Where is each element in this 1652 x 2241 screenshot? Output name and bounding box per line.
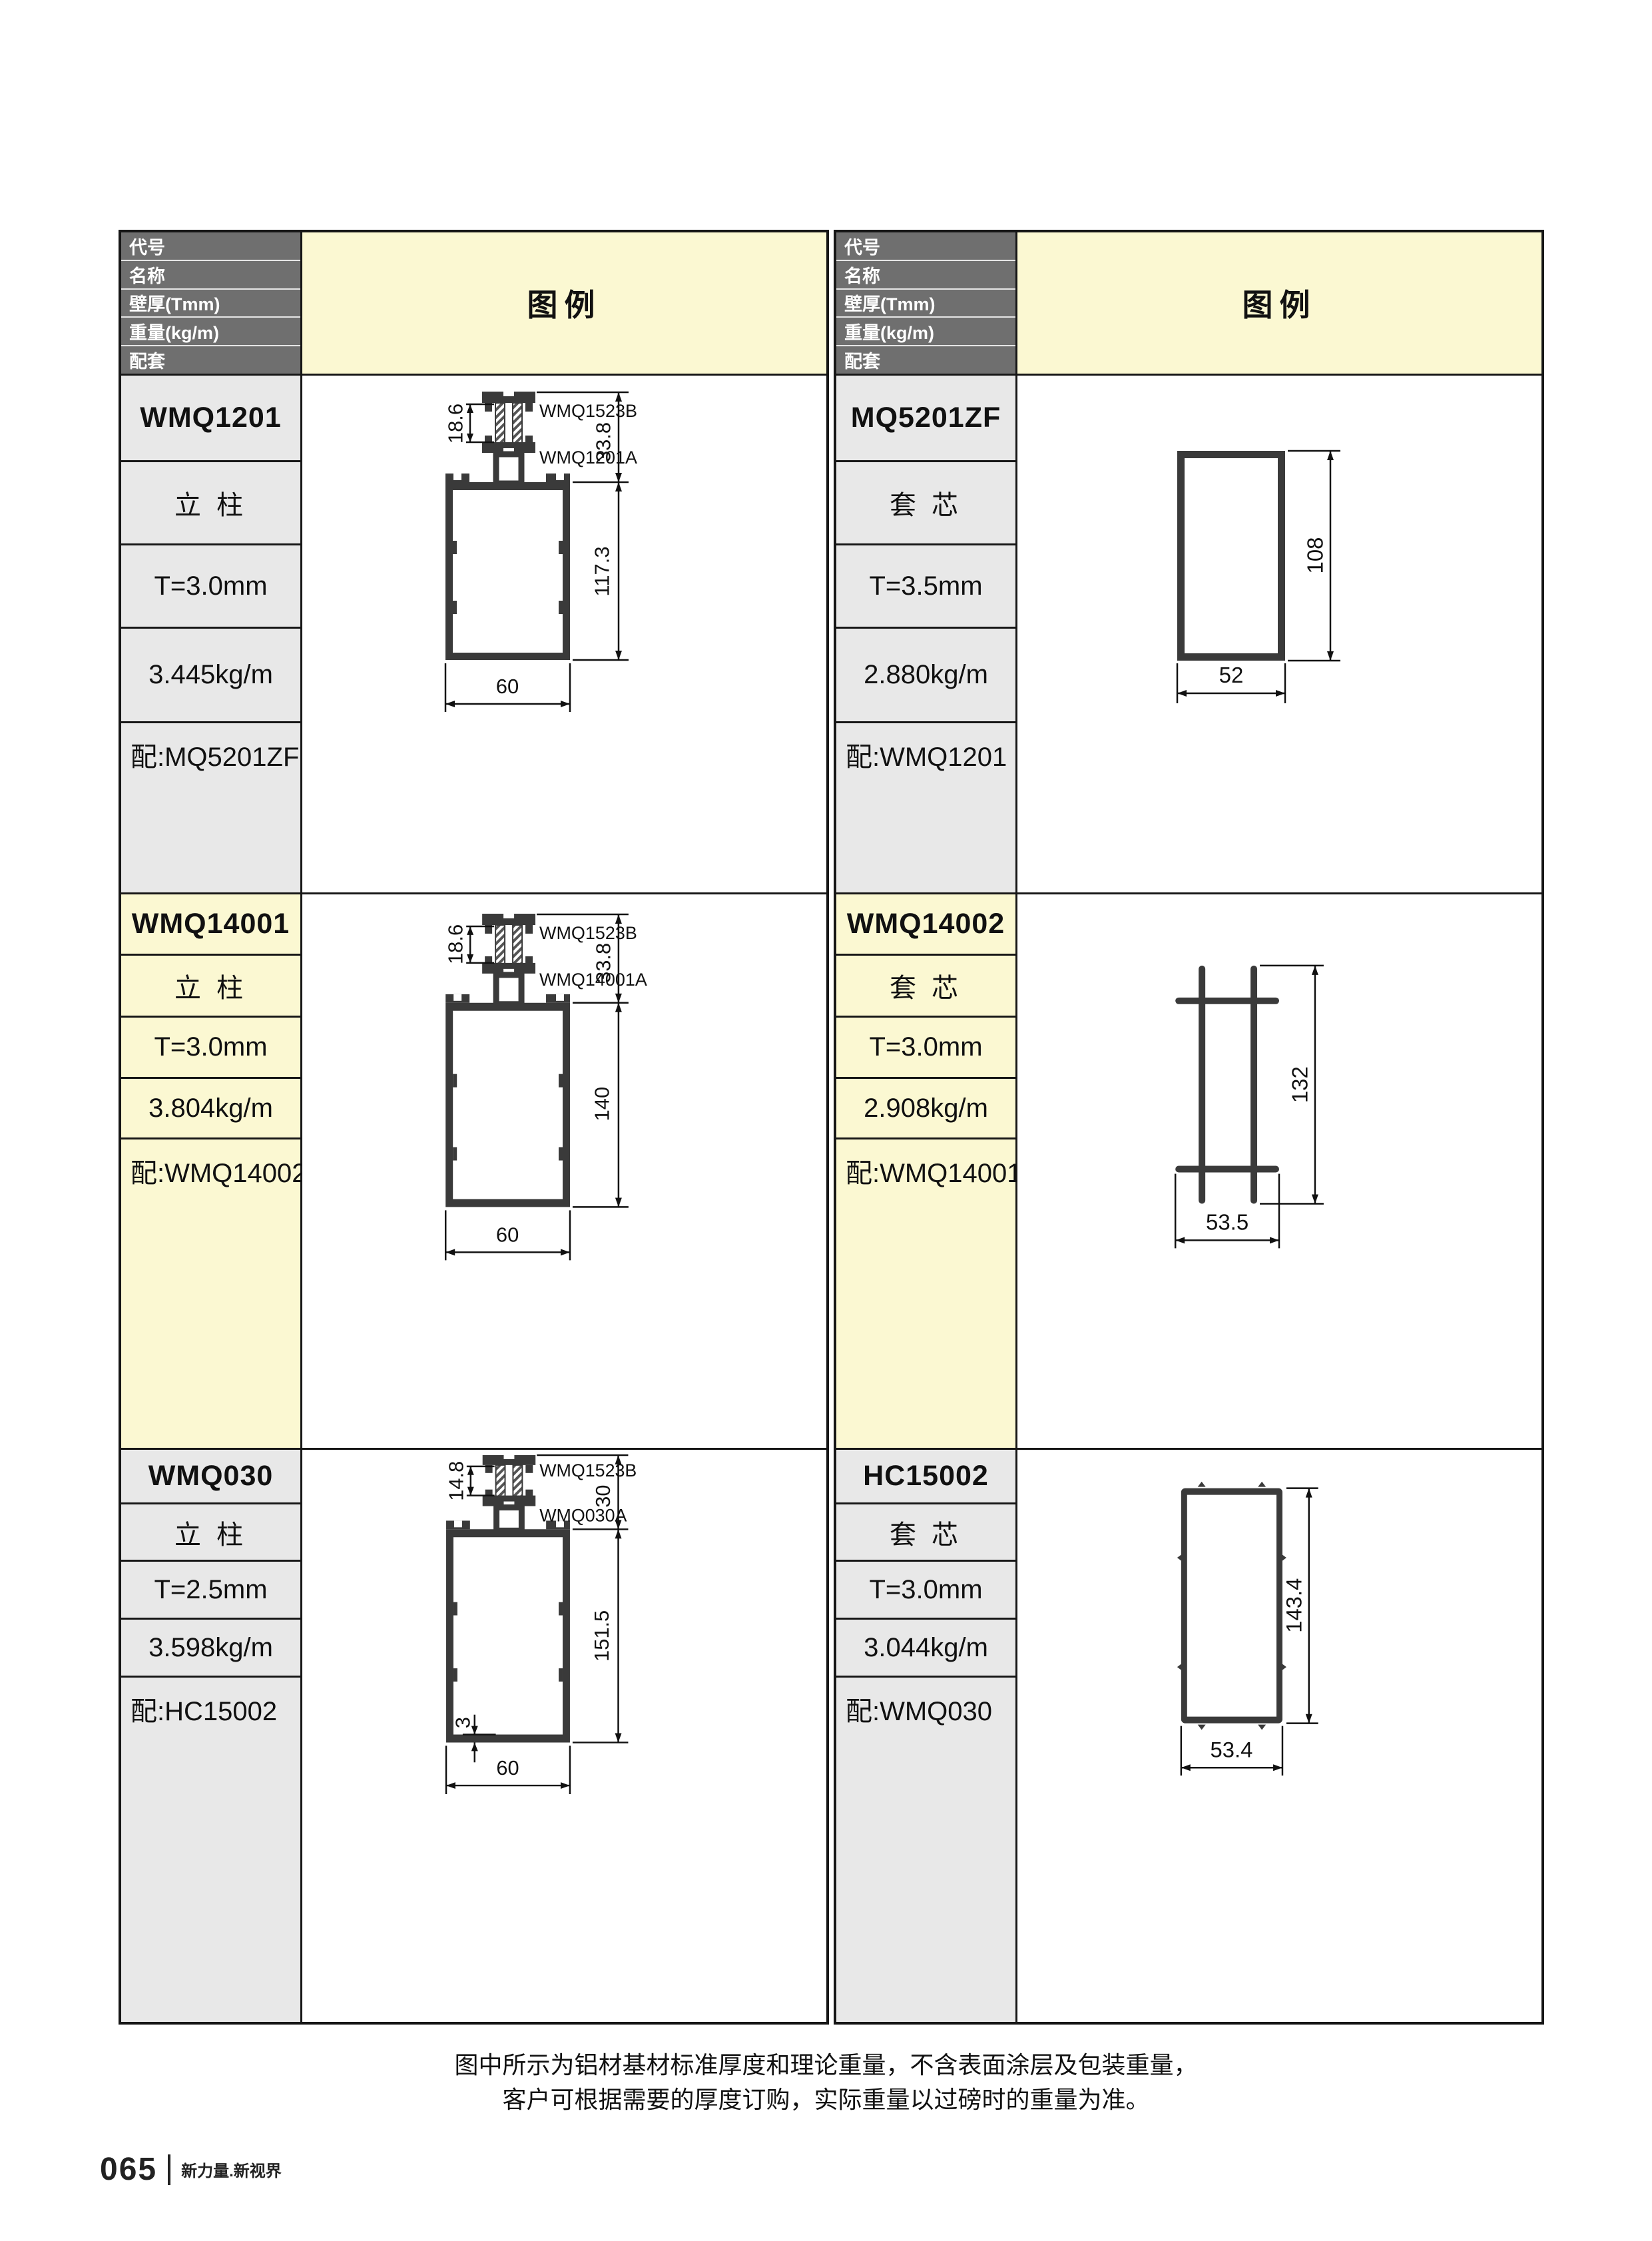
dim-height: 143.4 xyxy=(1281,1488,1318,1724)
footer-slogan: 新力量.新视界 xyxy=(181,2158,282,2181)
entry-4-match: 配:HC15002 xyxy=(121,1678,300,2022)
svg-text:3: 3 xyxy=(451,1717,474,1728)
dim-height: 117.3 xyxy=(573,482,629,660)
dim-width: 60 xyxy=(445,663,570,712)
svg-text:52: 52 xyxy=(1219,663,1244,687)
svg-text:14.8: 14.8 xyxy=(444,1461,467,1501)
svg-text:18.6: 18.6 xyxy=(444,404,467,444)
dim-width: 53.4 xyxy=(1181,1726,1282,1776)
legend-header: 图例 xyxy=(1017,232,1541,374)
svg-text:140: 140 xyxy=(590,1087,613,1121)
dim-width: 60 xyxy=(446,1746,570,1794)
svg-text:117.3: 117.3 xyxy=(591,546,614,596)
entry-3-name: 套 芯 xyxy=(836,956,1015,1016)
entry-4-drawing: 14.8 30 151.5 3 xyxy=(302,1450,826,2022)
profile-table-right: 代号 名称 壁厚(Tmm) 重量(kg/m) 配套 图例 MQ5201ZF 套 … xyxy=(834,230,1544,2025)
entry-5-thickness: T=3.0mm xyxy=(836,1562,1015,1618)
entry-0-name: 立 柱 xyxy=(121,462,300,543)
svg-text:108: 108 xyxy=(1303,537,1328,573)
entry-5-name: 套 芯 xyxy=(836,1504,1015,1560)
entry-5-weight: 3.044kg/m xyxy=(836,1620,1015,1676)
header-label-column: 代号 名称 壁厚(Tmm) 重量(kg/m) 配套 xyxy=(121,232,300,374)
entry-3-thickness: T=3.0mm xyxy=(836,1018,1015,1077)
svg-text:53.4: 53.4 xyxy=(1210,1737,1252,1761)
entry-2-weight: 3.804kg/m xyxy=(121,1079,300,1137)
svg-text:30: 30 xyxy=(591,1484,615,1507)
entry-1-drawing: 108 52 xyxy=(1017,376,1541,892)
header-label-code: 代号 xyxy=(836,232,1015,261)
catalog-page: 代号 名称 壁厚(Tmm) 重量(kg/m) 配套 图例 WMQ1201 立 柱… xyxy=(0,0,1652,2241)
entry-5-drawing: 143.4 53.4 xyxy=(1017,1450,1541,2022)
entry-5-match: 配:WMQ030 xyxy=(836,1678,1015,2022)
entry-0-code: WMQ1201 xyxy=(121,376,300,460)
dim-width: 52 xyxy=(1177,663,1285,703)
entry-1-weight: 2.880kg/m xyxy=(836,629,1015,721)
footnote-line-1: 图中所示为铝材基材标准厚度和理论重量，不含表面涂层及包装重量， xyxy=(0,2046,1652,2081)
dim-width: 60 xyxy=(445,1210,570,1260)
entry-3-weight: 2.908kg/m xyxy=(836,1079,1015,1137)
header-label-name: 名称 xyxy=(121,261,300,290)
dim-height: 151.5 xyxy=(573,1529,629,1742)
svg-text:60: 60 xyxy=(496,1756,519,1779)
footnote-line-2: 客户可根据需要的厚度订购，实际重量以过磅时的重量为准。 xyxy=(0,2081,1652,2115)
entry-3-drawing: 132 53.5 xyxy=(1017,894,1541,1448)
svg-text:143.4: 143.4 xyxy=(1281,1578,1306,1633)
entry-2-code: WMQ14001 xyxy=(121,894,300,954)
profile-body xyxy=(1175,966,1279,1204)
profile-table-left: 代号 名称 壁厚(Tmm) 重量(kg/m) 配套 图例 WMQ1201 立 柱… xyxy=(119,230,829,2025)
header-label-column: 代号 名称 壁厚(Tmm) 重量(kg/m) 配套 xyxy=(836,232,1015,374)
entry-4-name: 立 柱 xyxy=(121,1504,300,1560)
svg-text:60: 60 xyxy=(496,675,519,698)
dim-insert: 14.8 xyxy=(444,1461,494,1501)
part-label-body: WMQ14001A xyxy=(539,970,647,990)
part-label-top: WMQ1523B xyxy=(539,401,637,421)
part-label-body: WMQ030A xyxy=(539,1505,627,1525)
header-label-thickness: 壁厚(Tmm) xyxy=(121,290,300,318)
page-number: 065 xyxy=(100,2151,157,2188)
entry-0-thickness: T=3.0mm xyxy=(121,545,300,627)
dim-height: 108 xyxy=(1288,451,1340,661)
entry-3-code: WMQ14002 xyxy=(836,894,1015,954)
footer-divider xyxy=(168,2154,170,2185)
entry-2-thickness: T=3.0mm xyxy=(121,1018,300,1077)
part-label-body: WMQ1201A xyxy=(539,448,637,468)
header-label-weight: 重量(kg/m) xyxy=(836,318,1015,346)
entry-0-match: 配:MQ5201ZF xyxy=(121,723,300,892)
profile-body xyxy=(1177,1482,1286,1730)
entry-1-thickness: T=3.5mm xyxy=(836,545,1015,627)
header-label-code: 代号 xyxy=(121,232,300,261)
svg-text:60: 60 xyxy=(496,1223,519,1246)
entry-1-name: 套 芯 xyxy=(836,462,1015,543)
entry-2-match: 配:WMQ14002 xyxy=(121,1139,300,1448)
entry-1-match: 配:WMQ1201 xyxy=(836,723,1015,892)
svg-text:18.6: 18.6 xyxy=(444,924,467,964)
entry-4-code: WMQ030 xyxy=(121,1450,300,1502)
header-label-match: 配套 xyxy=(121,346,300,374)
entry-2-name: 立 柱 xyxy=(121,956,300,1016)
svg-text:53.5: 53.5 xyxy=(1206,1209,1248,1234)
svg-text:151.5: 151.5 xyxy=(590,1610,613,1662)
header-label-match: 配套 xyxy=(836,346,1015,374)
part-label-top: WMQ1523B xyxy=(539,923,637,943)
entry-0-drawing: 18.6 33.8 117.3 6 xyxy=(302,376,826,892)
header-label-thickness: 壁厚(Tmm) xyxy=(836,290,1015,318)
entry-4-thickness: T=2.5mm xyxy=(121,1562,300,1618)
entry-0-weight: 3.445kg/m xyxy=(121,629,300,721)
page-footer: 065 新力量.新视界 xyxy=(100,2151,282,2188)
header-label-weight: 重量(kg/m) xyxy=(121,318,300,346)
legend-header: 图例 xyxy=(302,232,826,374)
entry-5-code: HC15002 xyxy=(836,1450,1015,1502)
entry-2-drawing: 18.6 33.8 140 60 xyxy=(302,894,826,1448)
svg-text:132: 132 xyxy=(1287,1066,1312,1103)
entry-3-match: 配:WMQ14001 xyxy=(836,1139,1015,1448)
dim-width: 53.5 xyxy=(1175,1173,1279,1248)
part-label-top: WMQ1523B xyxy=(539,1460,637,1480)
entry-1-code: MQ5201ZF xyxy=(836,376,1015,460)
profile-body xyxy=(1177,451,1285,661)
entry-4-weight: 3.598kg/m xyxy=(121,1620,300,1676)
header-label-name: 名称 xyxy=(836,261,1015,290)
dim-height: 140 xyxy=(573,1003,629,1207)
